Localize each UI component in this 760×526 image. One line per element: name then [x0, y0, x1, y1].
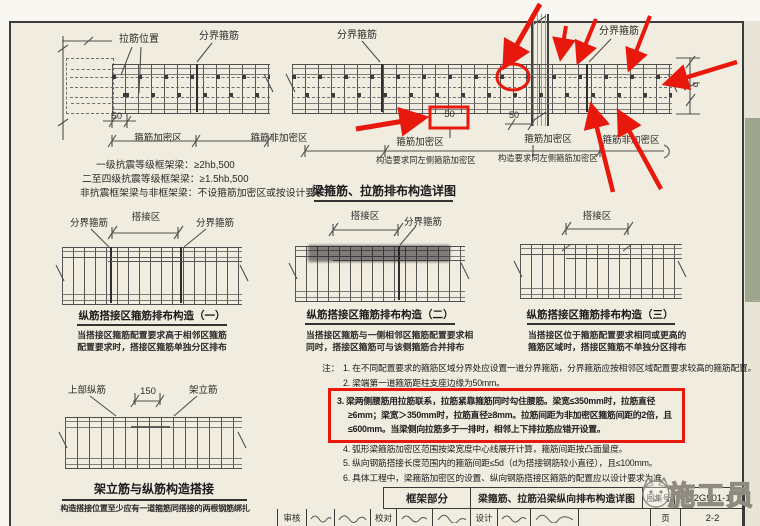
anchorage-hook-top — [71, 69, 111, 70]
signature-scribble — [501, 513, 527, 523]
drawing-sheet: 拉筋位置 分界箍筋 50 箍筋加密区 箍筋非加密区 一级抗震等级框架梁：≥2hb… — [0, 0, 760, 526]
note-3-highlight-box: 3. 梁两侧腰筋用拉筋联系，拉筋紧靠箍筋同时勾住腰筋。梁宽≤350mm时，拉筋直… — [328, 388, 685, 443]
proof-label-cell: 校对 — [371, 509, 397, 526]
spare-cell — [579, 509, 651, 526]
design-label: 设计 — [475, 512, 492, 524]
lap-diagram-3-title: 纵筋搭接区箍筋排布构造（三） — [522, 309, 678, 321]
lap-bar-line — [566, 258, 682, 259]
lap-zone-label: 搭接区 — [125, 213, 167, 224]
lap-bar-line — [520, 254, 628, 255]
beam-elevation-right — [292, 64, 672, 114]
zone-dense-label: 箍筋加密区 — [128, 134, 188, 145]
zone-dense-label: 箍筋加密区 — [394, 138, 446, 149]
lap-diagram-2-caption-1: 当搭接区箍筋与一侧相邻区箍筋配置要求相 — [306, 330, 473, 340]
lap-beam-1 — [62, 247, 242, 305]
note-1: 1. 在不同配置要求的箍筋区域分界处应设置一道分界箍筋，分界箍筋应按相邻区域配置… — [343, 361, 756, 374]
zone-dense-note: 构造要求同左侧箍筋加密区 — [498, 154, 598, 164]
longitudinal-bar-line — [70, 97, 270, 98]
lap-bar-line — [108, 261, 242, 262]
anchorage-hook-bottom — [71, 103, 111, 104]
red-arrow — [356, 118, 422, 129]
boundary-stirrup-mark — [180, 247, 182, 303]
lap-diagram-2-caption-2: 同时，搭接区箍筋可与该侧箍筋合并排布 — [306, 342, 464, 352]
review-label-cell: 审核 — [278, 509, 307, 526]
sheet-border-top — [9, 21, 744, 23]
proof-label: 校对 — [375, 512, 392, 524]
longitudinal-bar-line — [292, 87, 672, 88]
red-arrow — [620, 114, 661, 189]
boundary-stirrup-mark — [196, 64, 198, 112]
title-block-sheet-title-cell: 梁箍筋、拉筋沿梁纵向排布构造详图 — [471, 488, 643, 508]
design-name-cell — [498, 509, 531, 526]
note-5: 5. 纵向钢筋搭接长度范围内的箍筋间距≤5d（d为搭接钢筋较小直径），且≤100… — [343, 456, 657, 469]
tie-bar-dots-row — [292, 75, 672, 79]
boundary-stirrup-label: 分界箍筋 — [404, 218, 442, 229]
notes-prefix: 注： — [322, 361, 339, 374]
lap-diagram-1-caption-2: 配置要求时，搭接区箍筋单独分区排布 — [62, 342, 242, 352]
seismic-rule-2: 二至四级抗震等级框架梁：≥1.5hb,500 — [82, 174, 249, 185]
beam-elevation-left — [112, 64, 270, 114]
lap-diagram-3-caption-1: 当搭接区位于箍筋配置要求相同或更高的 — [528, 330, 686, 340]
boundary-stirrup-label: 分界箍筋 — [196, 219, 234, 230]
seismic-rule-1: 一级抗震等级框架梁：≥2hb,500 — [96, 160, 235, 171]
lap-zone-label: 搭接区 — [344, 212, 386, 223]
watermark-text: 施工员 — [668, 474, 755, 513]
lap-zone-label: 搭接区 — [576, 212, 618, 223]
lap-diagram-1-title: 纵筋搭接区箍筋排布构造（一） — [74, 310, 230, 322]
proof-signature-cell — [433, 509, 471, 526]
dim-50-boxed-label: 50 — [436, 110, 463, 121]
zone-dense-label: 箍筋加密区 — [522, 135, 574, 146]
signature-scribble — [338, 513, 368, 523]
boundary-stirrup-mark — [381, 64, 383, 112]
note-6: 6. 具体工程中，梁箍筋加密区的设置、纵向钢筋搭接区箍筋的配置应以设计要求为准。 — [343, 471, 670, 484]
beam-detail-title: 梁箍筋、拉筋排布构造详图 — [312, 185, 454, 199]
tie-bar-dots-row — [112, 93, 270, 97]
lap-diagram-1-caption-1: 当搭接区箍筋配置要求高于相邻区箍筋 — [62, 330, 242, 340]
page-number: 2-2 — [706, 513, 720, 524]
boundary-stirrup-label: 分界箍筋 — [337, 30, 377, 42]
lap-diagram-2-underline — [305, 323, 455, 325]
zone-nondense-label: 箍筋非加密区 — [600, 136, 662, 147]
beam-detail-title-underline — [314, 200, 453, 202]
review-signature-cell — [335, 509, 371, 526]
boundary-stirrup-mark — [110, 247, 112, 303]
lap-diagram-3-underline — [527, 323, 675, 325]
beam-width-dim-label: b — [689, 82, 700, 87]
zone-dense-note: 构造要求同左侧箍筋加密区 — [376, 156, 476, 166]
sheet-top-strip — [0, 0, 760, 21]
column-outline-dashed — [66, 58, 114, 114]
red-arrow — [561, 26, 566, 56]
lap-beam-3 — [520, 244, 682, 299]
top-longitudinal-bar-label: 上部纵筋 — [68, 386, 106, 397]
sheet-left-strip — [0, 0, 9, 526]
sheet-border-left — [9, 21, 11, 526]
erection-title-underline — [62, 499, 247, 501]
design-label-cell: 设计 — [471, 509, 498, 526]
dim-50-label: 50 — [112, 111, 122, 121]
red-arrow — [579, 19, 596, 60]
erection-diagram-title: 架立筋与纵筋构造搭接 — [84, 483, 224, 497]
longitudinal-bar-line — [70, 87, 270, 88]
red-arrow — [630, 16, 650, 67]
erection-lap-beam — [65, 417, 242, 469]
dim-50-label: 50 — [509, 110, 519, 120]
note-3: 3. 梁两侧腰筋用拉筋联系，拉筋紧靠箍筋同时勾住腰筋。梁宽≤350mm时，拉筋直… — [337, 396, 672, 434]
red-arrow — [592, 108, 613, 192]
page-label: 页 — [661, 512, 670, 524]
note-4: 4. 弧形梁箍筋加密区范围按梁宽度中心线展开计算，箍筋间距按凸面量度。 — [343, 442, 627, 455]
lap-diagram-3-caption-2: 箍筋区域时，搭接区箍筋不单独分区排布 — [528, 342, 686, 352]
title-block-section-cell: 框架部分 — [384, 488, 471, 508]
signature-scribble — [535, 513, 575, 523]
boundary-stirrup-label: 分界箍筋 — [70, 219, 108, 230]
zone-nondense-label: 箍筋非加密区 — [244, 134, 314, 145]
sheet-right-green-edge — [745, 118, 760, 302]
signature-scribble — [401, 513, 429, 523]
erection-diagram-caption: 构造搭接位置至少应有一道箍筋同搭接的两根钢筋绑扎 — [53, 504, 257, 513]
design-signature-cell — [531, 509, 579, 526]
proof-name-cell — [397, 509, 433, 526]
boundary-stirrup-label: 分界箍筋 — [199, 31, 239, 43]
review-name-cell — [307, 509, 335, 526]
signature-scribble — [310, 513, 332, 523]
longitudinal-bar-line — [292, 97, 672, 98]
red-arrow — [668, 62, 737, 83]
seismic-rule-3: 非抗震框架梁与非框架梁：不设箍筋加密区或按设计要求 — [80, 188, 325, 199]
sheet-border-right — [742, 21, 744, 526]
boundary-stirrup-label: 分界箍筋 — [599, 26, 639, 38]
signature-scribble — [437, 513, 467, 523]
lap-bar-line — [62, 257, 182, 258]
section-name: 框架部分 — [406, 491, 448, 506]
erection-bar-label: 架立筋 — [189, 386, 218, 397]
tie-bar-dots-row — [292, 93, 672, 97]
sheet-title: 梁箍筋、拉筋沿梁纵向排布构造详图 — [478, 491, 635, 505]
sheet-right-edge-line — [752, 300, 760, 301]
dim-150-label: 150 — [133, 387, 163, 398]
watermark-smudge — [308, 245, 450, 262]
lap-diagram-1-underline — [77, 324, 227, 326]
boundary-stirrup-mark — [586, 64, 588, 112]
tie-position-label: 拉筋位置 — [119, 34, 159, 46]
review-label: 审核 — [283, 512, 300, 524]
tie-bar-dots-row — [112, 75, 270, 79]
lap-diagram-2-title: 纵筋搭接区箍筋排布构造（二） — [302, 309, 458, 321]
